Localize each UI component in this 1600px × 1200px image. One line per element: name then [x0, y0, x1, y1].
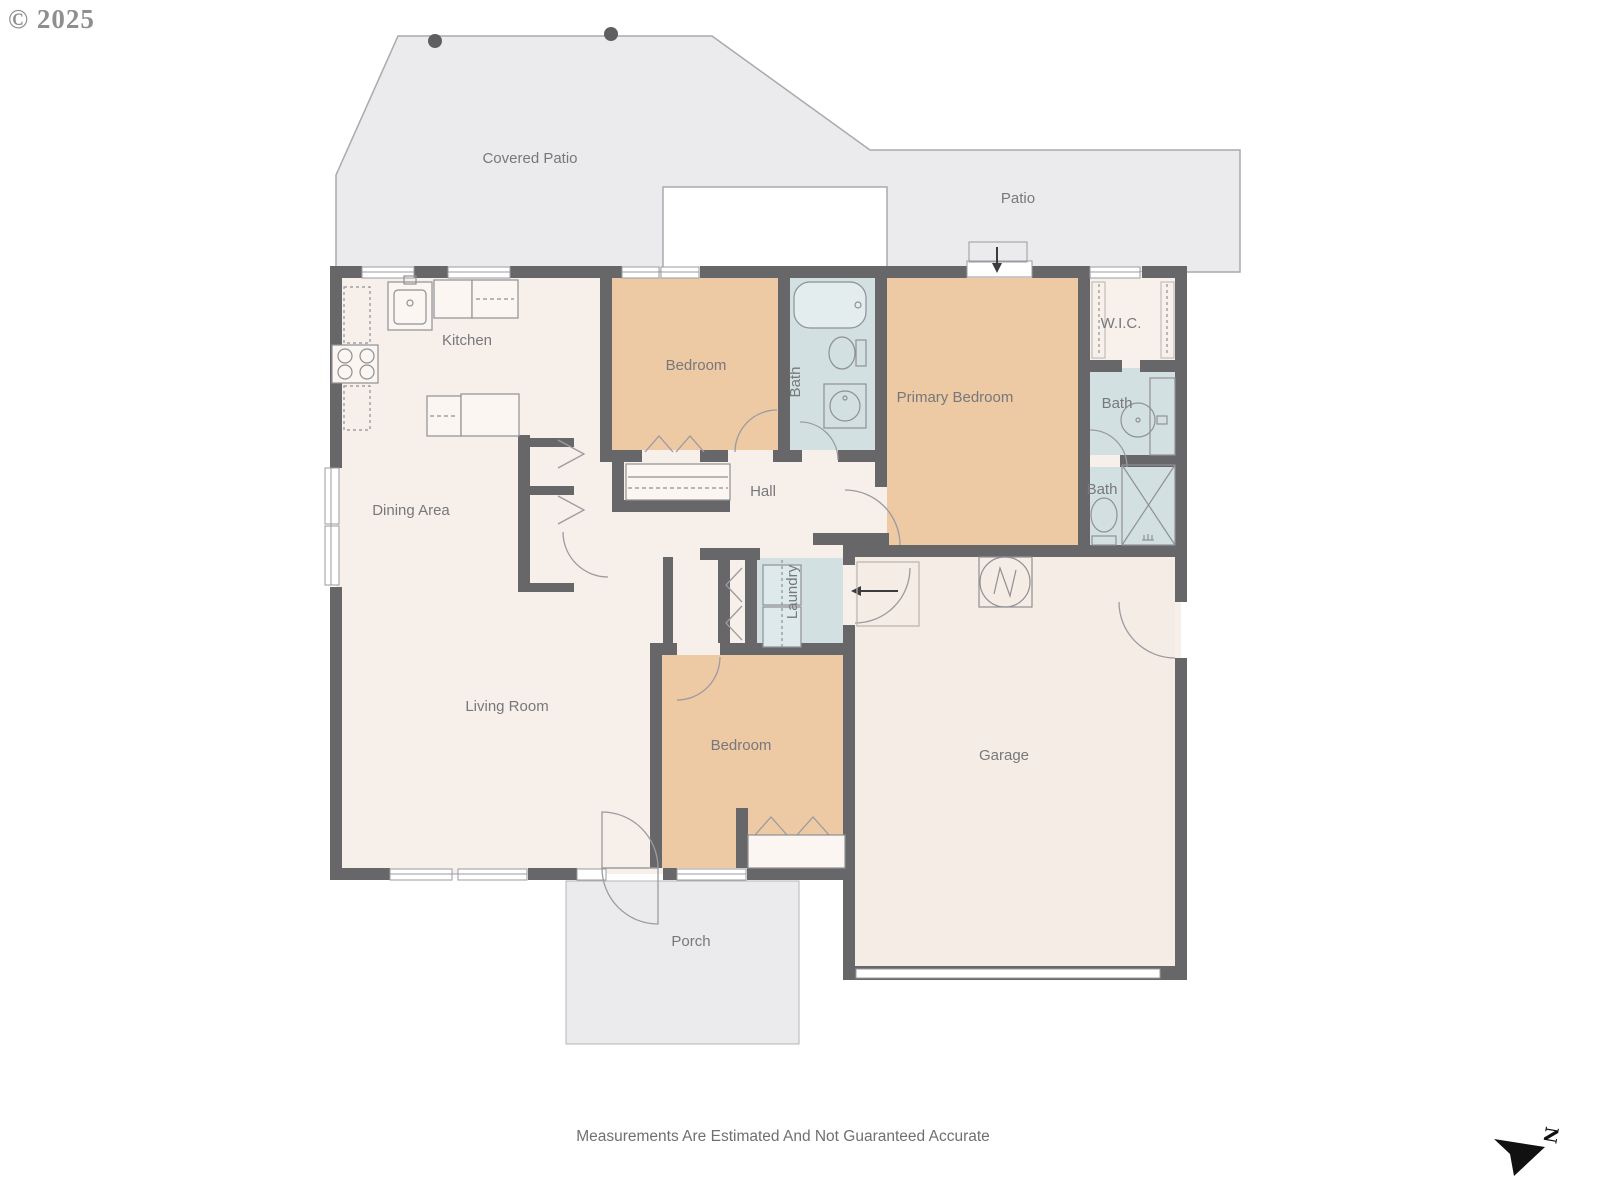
north-arrow-icon	[1494, 1139, 1545, 1176]
label-patio: Patio	[1001, 190, 1035, 207]
label-porch: Porch	[671, 933, 710, 950]
patio-post-icon	[428, 34, 442, 48]
kitchen-counter	[434, 280, 472, 318]
covered-patio-area	[336, 36, 1240, 272]
kitchen-island	[461, 394, 519, 436]
disclaimer-text: Measurements Are Estimated And Not Guara…	[576, 1128, 990, 1145]
closet-shelf	[748, 835, 845, 868]
label-bath-primary: Bath	[1102, 395, 1133, 412]
floor-plan-page: Covered Patio Patio Kitchen Bedroom Bath…	[0, 0, 1600, 1200]
label-living: Living Room	[465, 698, 548, 715]
label-kitchen: Kitchen	[442, 332, 492, 349]
patio-post-icon	[604, 27, 618, 41]
label-wic: W.I.C.	[1101, 315, 1142, 332]
room-primary-bedroom	[887, 278, 1078, 545]
label-dining: Dining Area	[372, 502, 450, 519]
closet-shelf	[626, 464, 730, 500]
garage-door	[856, 969, 1160, 978]
label-bedroom-top: Bedroom	[666, 357, 727, 374]
porch-area	[566, 881, 799, 1044]
label-bedroom-bottom: Bedroom	[711, 737, 772, 754]
floor-plan-canvas: Covered Patio Patio Kitchen Bedroom Bath…	[0, 0, 1600, 1200]
label-garage: Garage	[979, 747, 1029, 764]
label-hall: Hall	[750, 483, 776, 500]
copyright-text: © 2025	[8, 4, 95, 34]
label-laundry: Laundry	[784, 564, 801, 619]
label-bath-hall: Bath	[787, 367, 804, 398]
compass-letter: N	[1538, 1125, 1562, 1145]
label-primary-bedroom: Primary Bedroom	[897, 389, 1014, 406]
compass: N	[1494, 1125, 1562, 1176]
label-bath-lower: Bath	[1087, 481, 1118, 498]
label-covered-patio: Covered Patio	[482, 150, 577, 167]
